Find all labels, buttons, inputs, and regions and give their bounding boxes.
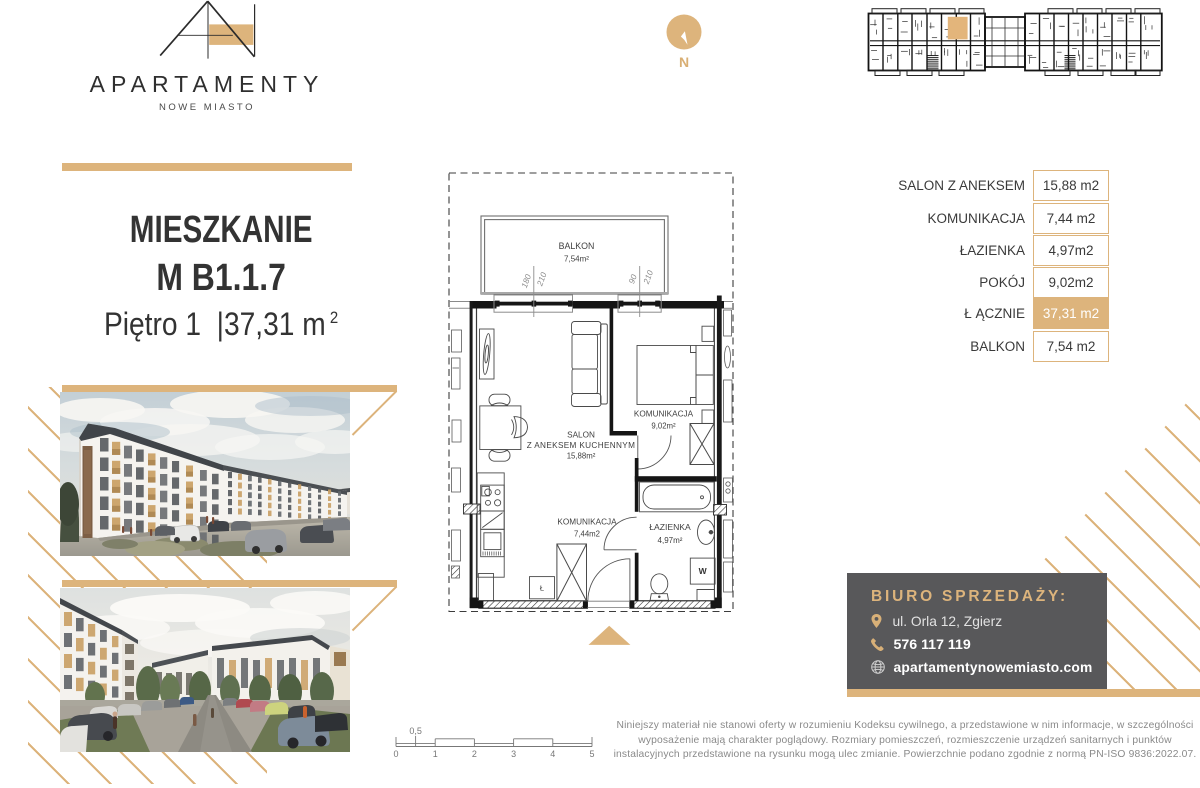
svg-text:0: 0	[393, 749, 398, 759]
svg-text:3: 3	[511, 749, 516, 759]
svg-text:KOMUNIKACJA: KOMUNIKACJA	[557, 518, 617, 527]
svg-text:Ł: Ł	[540, 584, 544, 593]
svg-text:9,02m²: 9,02m²	[651, 422, 676, 431]
svg-text:15,88m²: 15,88m²	[567, 452, 596, 461]
svg-text:KOMUNIKACJA: KOMUNIKACJA	[634, 410, 694, 419]
svg-text:W: W	[699, 566, 708, 576]
svg-text:0,5: 0,5	[409, 726, 422, 736]
svg-text:4,97m²: 4,97m²	[658, 536, 683, 545]
svg-text:ŁAZIENKA: ŁAZIENKA	[649, 522, 691, 532]
svg-text:4: 4	[550, 749, 555, 759]
svg-text:210: 210	[642, 269, 656, 286]
svg-text:1: 1	[433, 749, 438, 759]
svg-text:7,54m²: 7,54m²	[564, 255, 589, 264]
svg-text:210: 210	[535, 271, 549, 288]
svg-text:7,44m2: 7,44m2	[574, 530, 600, 539]
svg-text:Z ANEKSEM KUCHENNYM: Z ANEKSEM KUCHENNYM	[527, 441, 636, 450]
svg-text:BALKON: BALKON	[559, 241, 595, 251]
svg-text:2: 2	[472, 749, 477, 759]
svg-text:SALON: SALON	[567, 430, 595, 439]
svg-text:180: 180	[520, 273, 533, 289]
svg-text:90: 90	[627, 273, 639, 285]
svg-text:N: N	[679, 54, 689, 70]
svg-text:5: 5	[589, 749, 594, 759]
